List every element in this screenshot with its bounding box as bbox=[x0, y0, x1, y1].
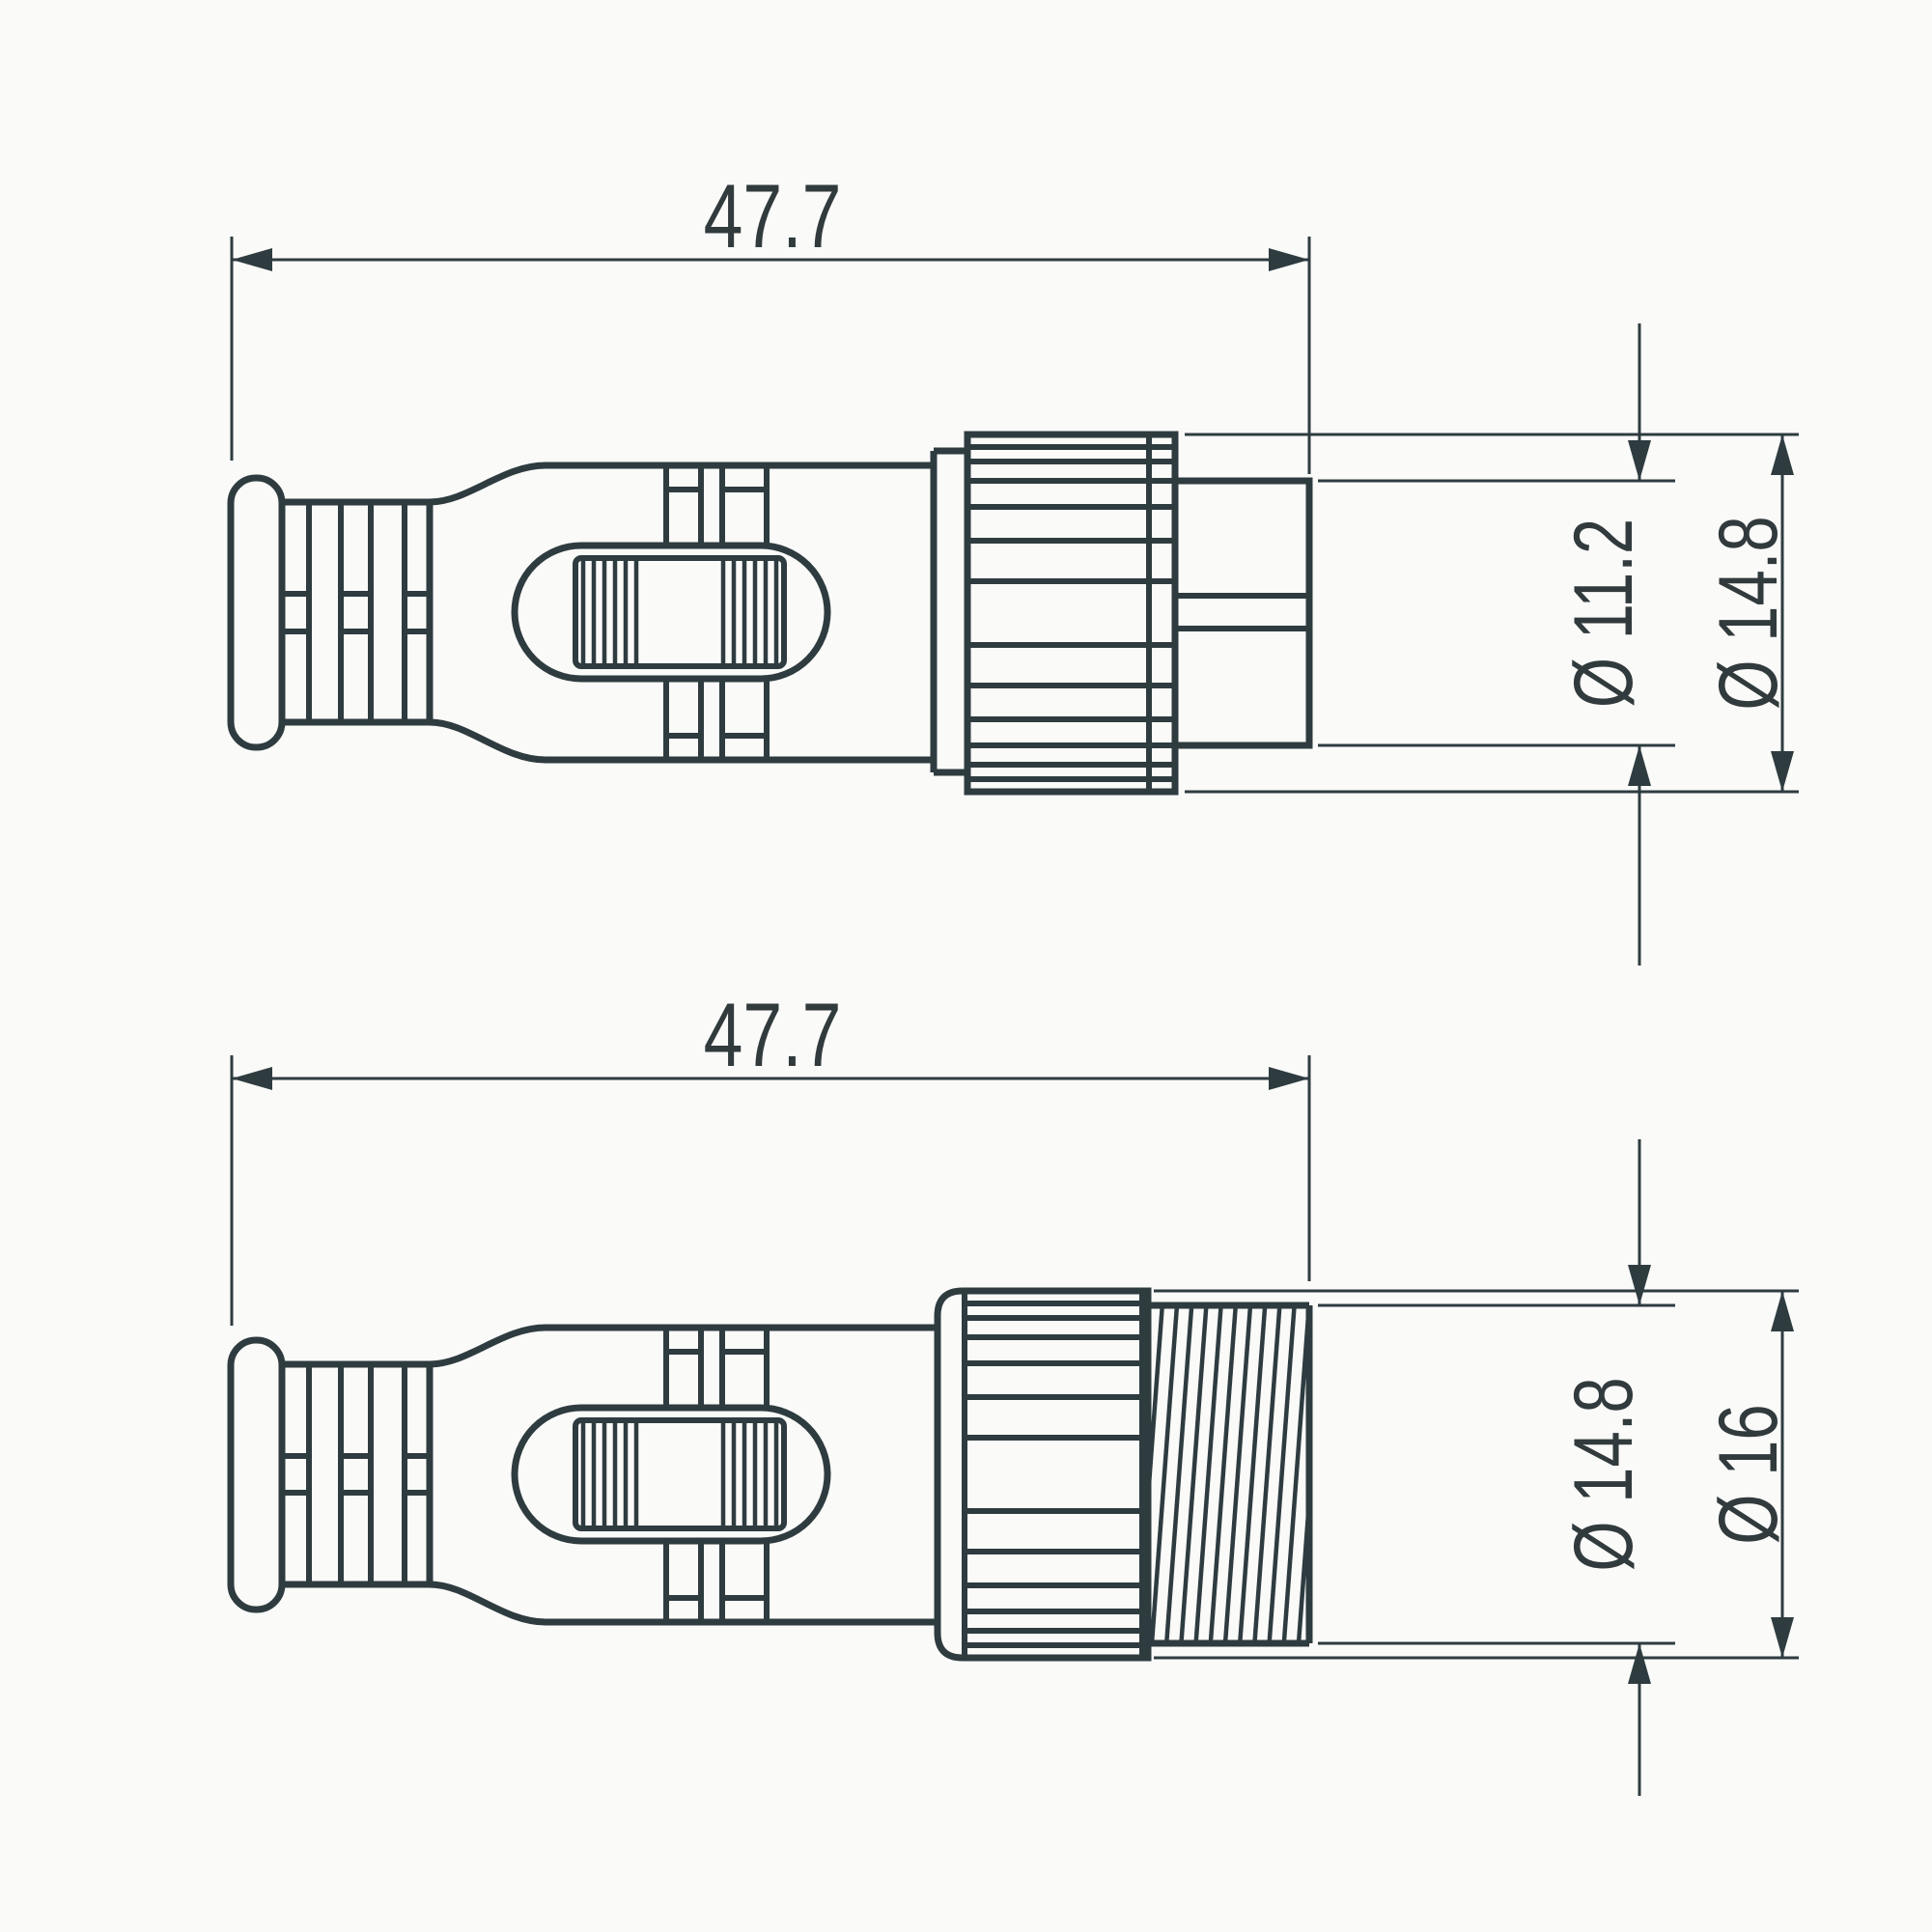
technical-drawing-page: 47.7 bbox=[0, 0, 1932, 1932]
top-view: 47.7 bbox=[231, 165, 1799, 966]
top-length-label: 47.7 bbox=[704, 165, 842, 266]
bottom-length-label: 47.7 bbox=[704, 984, 842, 1085]
bottom-view: 47.7 bbox=[231, 984, 1799, 1796]
dim-arrow-left bbox=[232, 248, 272, 271]
technical-drawing-canvas: 47.7 bbox=[0, 0, 1932, 1932]
top-diameter-outer-dimension: Ø 14.8 bbox=[1185, 434, 1799, 792]
bottom-latch bbox=[515, 1408, 827, 1541]
dim-arrow-right bbox=[1269, 248, 1309, 271]
bottom-cable-cap bbox=[231, 1340, 282, 1610]
bottom-diameter-outer-label: Ø 16 bbox=[1702, 1404, 1795, 1544]
bottom-coupling-nut bbox=[938, 1291, 1148, 1658]
bottom-body bbox=[430, 1328, 938, 1622]
top-length-dimension: 47.7 bbox=[232, 165, 1309, 474]
top-diameter-outer-label: Ø 14.8 bbox=[1702, 516, 1795, 710]
bottom-diameter-inner-label: Ø 14.8 bbox=[1557, 1377, 1650, 1571]
top-coupling-nut bbox=[967, 434, 1175, 792]
bottom-diameter-inner-dimension: Ø 14.8 bbox=[1318, 1139, 1675, 1796]
top-cable-cap bbox=[231, 478, 282, 747]
top-body bbox=[430, 451, 967, 772]
top-plug-tip bbox=[1175, 481, 1309, 745]
bottom-strain-relief bbox=[282, 1364, 430, 1584]
bottom-threaded-barrel bbox=[1123, 1305, 1339, 1643]
bottom-length-dimension: 47.7 bbox=[232, 984, 1309, 1326]
top-diameter-inner-label: Ø 11.2 bbox=[1557, 518, 1650, 708]
top-latch bbox=[515, 546, 827, 679]
top-diameter-inner-dimension: Ø 11.2 bbox=[1318, 323, 1675, 966]
top-strain-relief bbox=[282, 502, 430, 722]
